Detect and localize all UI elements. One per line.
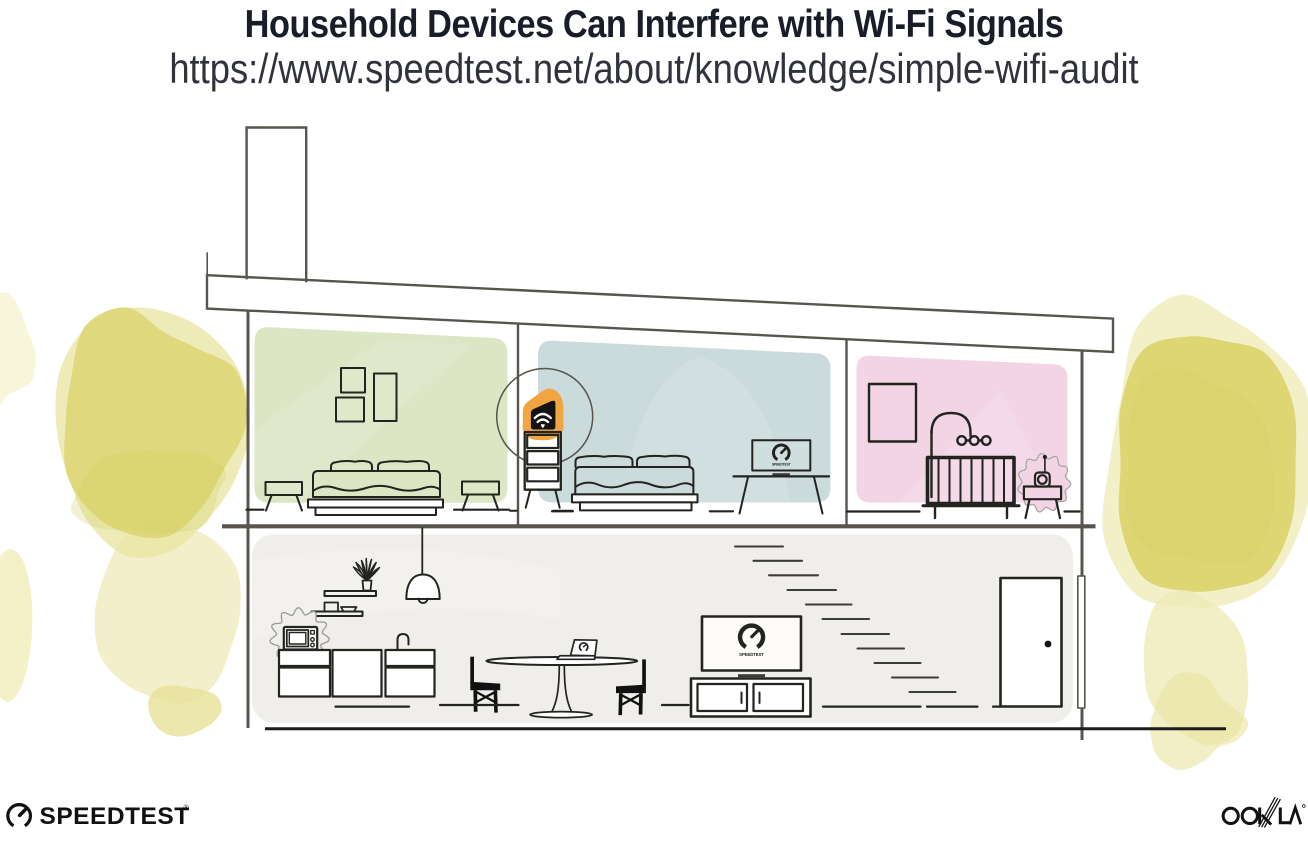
svg-text:SPEEDTEST: SPEEDTEST	[772, 462, 791, 466]
svg-text:SPEEDTEST: SPEEDTEST	[739, 652, 764, 657]
svg-text:®: ®	[184, 804, 190, 812]
svg-text:SPEEDTEST: SPEEDTEST	[40, 803, 190, 830]
